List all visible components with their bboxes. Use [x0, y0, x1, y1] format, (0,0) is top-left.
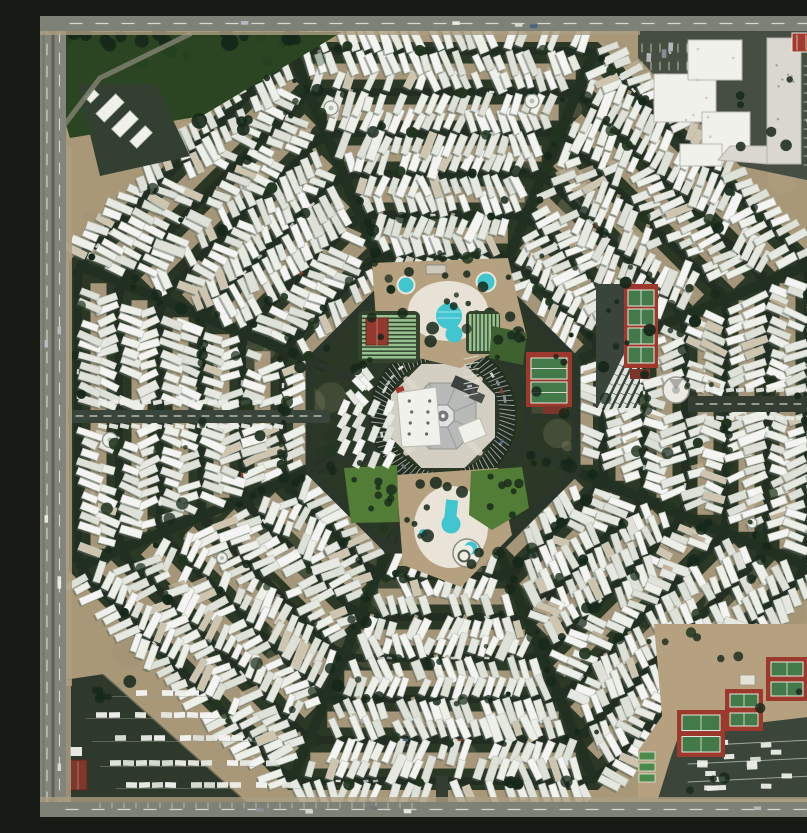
- trailer-park-scene: [40, 16, 807, 817]
- road-south: [40, 797, 807, 817]
- aerial-photograph: Top-down satellite photograph of a mobil…: [40, 16, 807, 817]
- round-building-east: [663, 377, 689, 403]
- tennis-complex-se: [638, 624, 807, 802]
